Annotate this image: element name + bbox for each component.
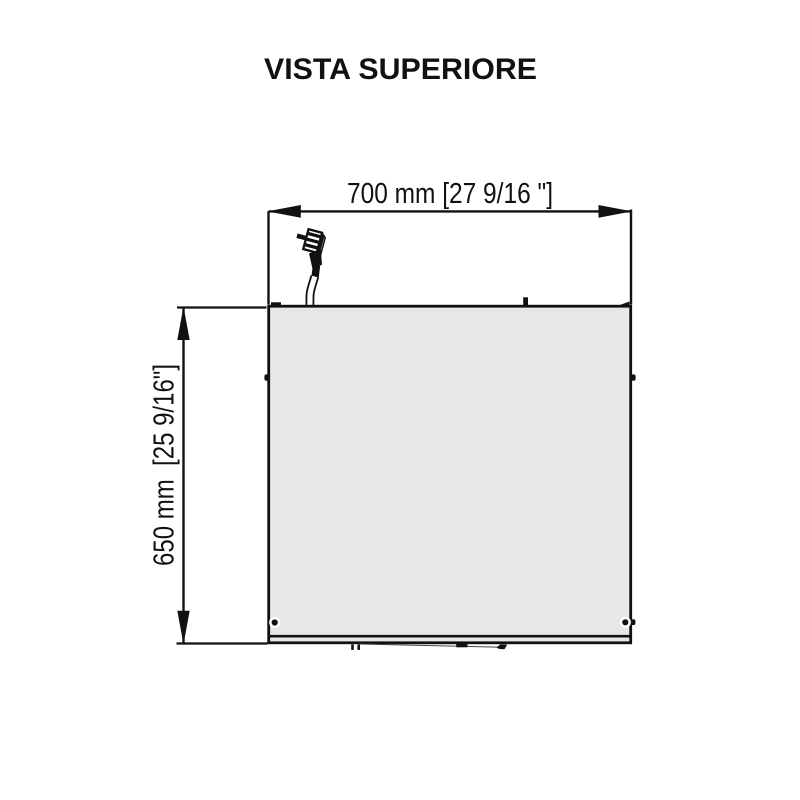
- svg-text:VISTA SUPERIORE: VISTA SUPERIORE: [264, 53, 537, 86]
- svg-text:650 mm [25 9/16"]: 650 mm [25 9/16"]: [149, 364, 181, 566]
- svg-text:700 mm [27 9/16 "]: 700 mm [27 9/16 "]: [347, 178, 553, 210]
